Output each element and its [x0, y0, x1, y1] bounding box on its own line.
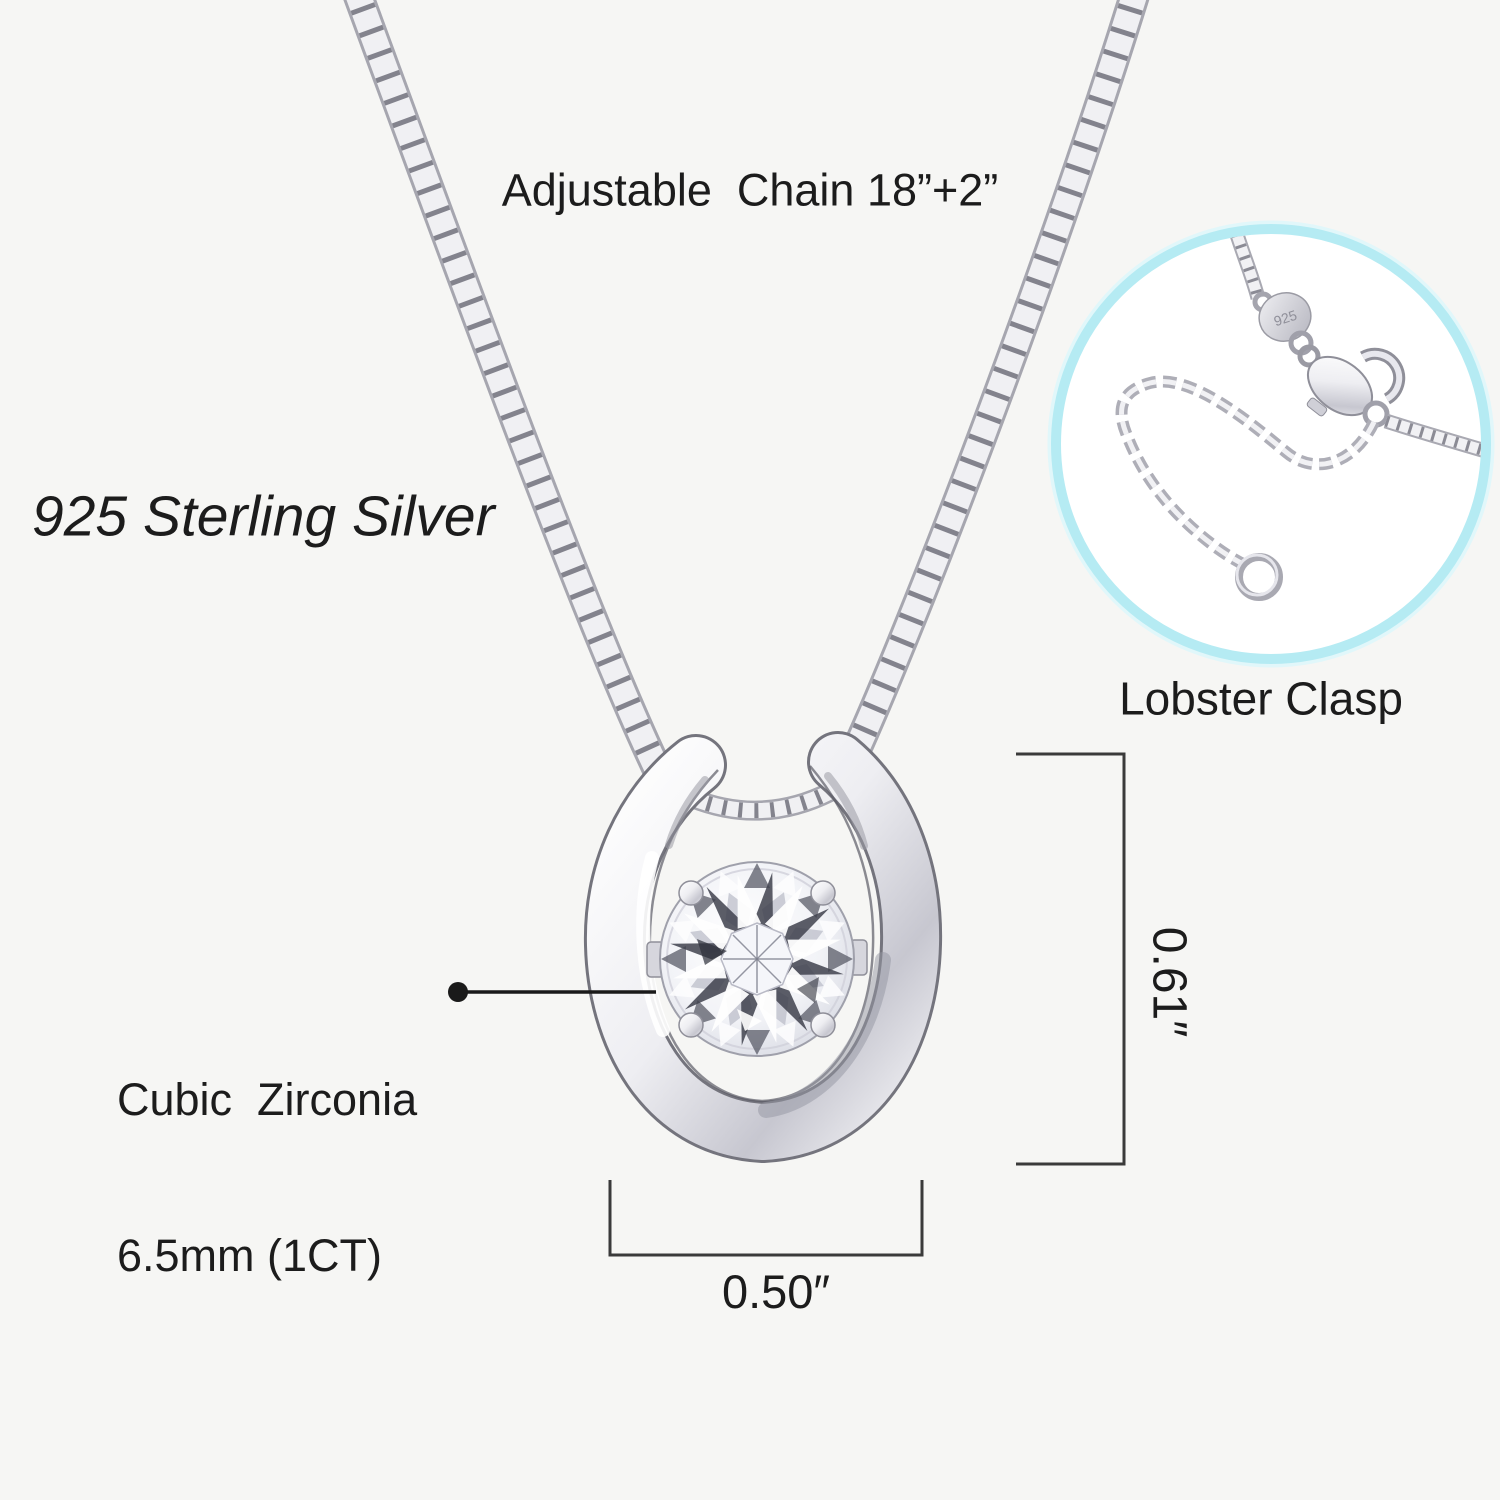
- stone-label-line1: Cubic Zirconia: [117, 1074, 417, 1126]
- chain-through-bail: [692, 792, 830, 811]
- clasp-inset-circle: 925: [1050, 222, 1496, 665]
- stone-prong: [679, 1013, 703, 1037]
- cubic-zirconia-stone: [647, 862, 867, 1056]
- stone-prong: [811, 881, 835, 905]
- stone-label: Cubic Zirconia 6.5mm (1CT): [117, 970, 417, 1334]
- stone-label-line2: 6.5mm (1CT): [117, 1230, 417, 1282]
- width-dimension-label: 0.50″: [722, 1266, 830, 1318]
- width-measure-bracket: [610, 1180, 922, 1255]
- stone-prong: [811, 1013, 835, 1037]
- necklace-chain-left: [354, 0, 660, 775]
- height-dimension-label: 0.61″: [1142, 927, 1195, 1037]
- stone-prong: [679, 881, 703, 905]
- leader-dot: [448, 982, 468, 1002]
- chain-length-label: Adjustable Chain 18”+2”: [502, 165, 999, 215]
- material-label: 925 Sterling Silver: [32, 486, 495, 549]
- height-measure-bracket: [1016, 754, 1124, 1164]
- clasp-label: Lobster Clasp: [1119, 674, 1403, 725]
